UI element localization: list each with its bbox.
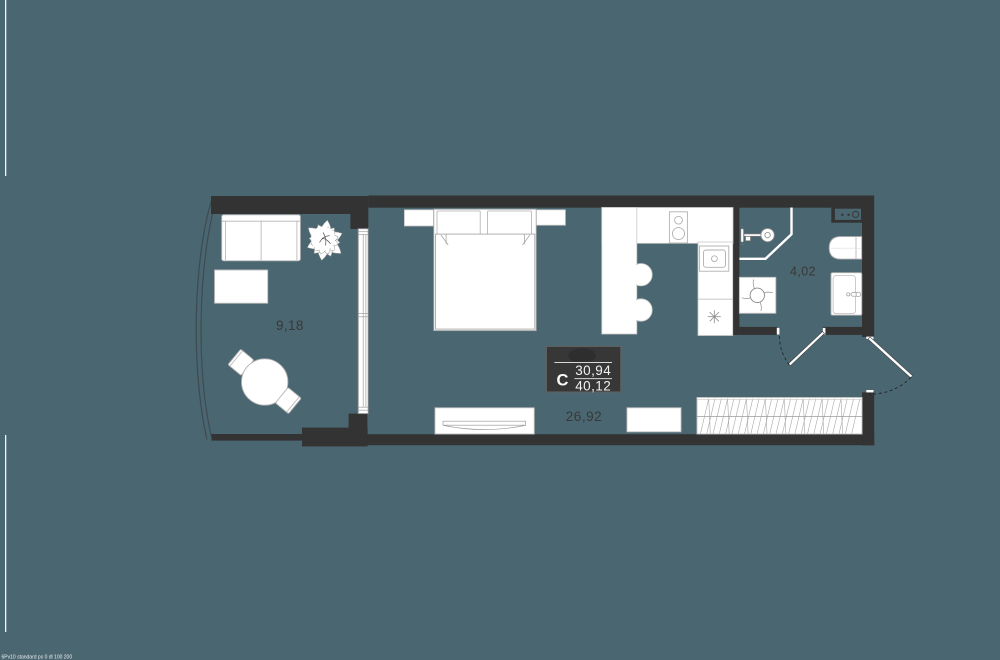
svg-text:6Pv10 standard ps 0 dl 100 200: 6Pv10 standard ps 0 dl 100 200 [2, 655, 73, 660]
svg-text:30,94: 30,94 [575, 363, 611, 378]
svg-text:C: C [557, 372, 569, 390]
svg-text:4,02: 4,02 [790, 265, 816, 279]
svg-text:9,18: 9,18 [276, 318, 304, 333]
svg-text:40,12: 40,12 [575, 378, 611, 393]
svg-text:26,92: 26,92 [566, 409, 602, 424]
